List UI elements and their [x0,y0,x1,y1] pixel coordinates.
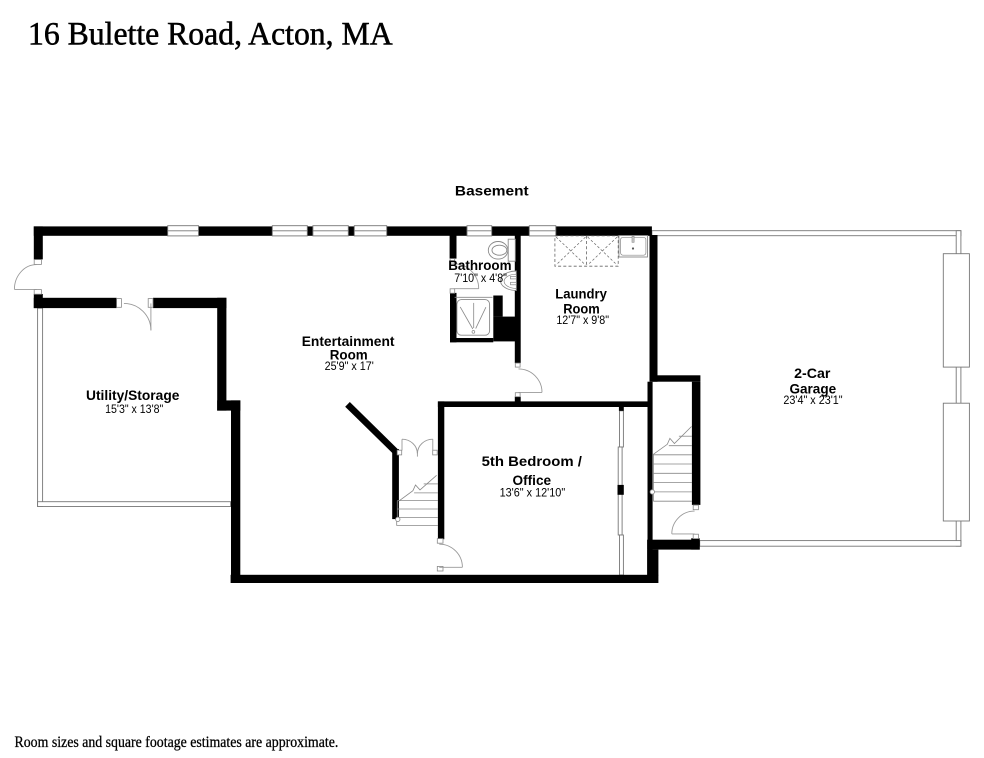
svg-text:23'4" x 23'1": 23'4" x 23'1" [783,393,842,407]
svg-text:5th Bedroom /: 5th Bedroom / [482,453,582,469]
svg-text:15'3" x 13'8": 15'3" x 13'8" [105,402,163,416]
svg-text:12'7" x 9'8": 12'7" x 9'8" [556,313,609,327]
svg-text:Basement: Basement [455,183,529,199]
svg-text:7'10" x 4'8": 7'10" x 4'8" [454,271,507,285]
svg-text:25'9" x 17': 25'9" x 17' [325,359,374,373]
svg-text:Laundry: Laundry [555,285,607,301]
svg-text:16 Bulette Road, Acton, MA: 16 Bulette Road, Acton, MA [28,16,393,52]
svg-text:Room sizes and square footage: Room sizes and square footage estimates … [15,734,339,751]
svg-text:13'6" x 12'10": 13'6" x 12'10" [500,485,566,499]
svg-text:Utility/Storage: Utility/Storage [86,387,180,403]
svg-text:2-Car: 2-Car [794,365,831,381]
